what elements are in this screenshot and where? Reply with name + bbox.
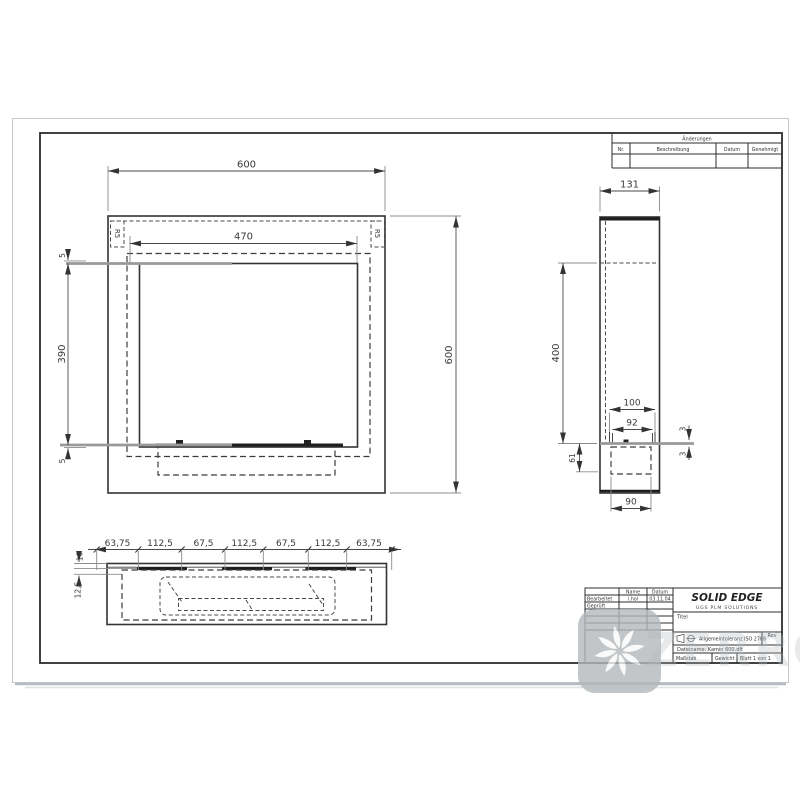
solid-edge-sub: UGS PLM SOLUTIONS: [696, 605, 758, 611]
watermark-logo-icon: [578, 609, 661, 693]
dim-front-corner-right: R5: [373, 229, 381, 238]
dim-side-height: 400: [551, 343, 562, 362]
dim-front-gap-top: 5: [58, 253, 67, 258]
revision-col-nr: Nr.: [618, 147, 625, 153]
revision-col-desc: Beschreibung: [657, 147, 690, 153]
dim-front-inner-height: 390: [57, 344, 68, 363]
tb-col-name: Name: [626, 590, 640, 596]
dim-side-slot-outer: 100: [623, 399, 640, 409]
dim-bottom-seg5: 67,5: [276, 539, 296, 549]
dim-bottom-seg6: 112,5: [315, 539, 341, 549]
dim-bottom-depth: 12,5: [74, 581, 83, 598]
dim-bottom-seg4: 112,5: [231, 539, 257, 549]
dim-side-width: 131: [620, 180, 639, 191]
tb-row1-label: Bearbeitet: [587, 597, 612, 603]
revision-col-date: Datum: [724, 147, 741, 153]
tb-col-date: Datum: [652, 590, 669, 596]
revision-header: Änderungen: [682, 136, 711, 143]
dim-side-base-width: 90: [625, 498, 637, 508]
dim-front-inner-width: 470: [234, 232, 253, 243]
tb-row1-name: i.hol: [628, 597, 638, 603]
tb-row1-date: 03.11.04: [649, 597, 670, 603]
dim-front-corner-left: R5: [113, 229, 121, 238]
drawing-screenshot: Änderungen Nr. Beschreibung Datum Genehm…: [0, 0, 800, 800]
watermark-text: ZERRO: [645, 623, 800, 677]
cad-drawing-sheet: Änderungen Nr. Beschreibung Datum Genehm…: [0, 0, 800, 800]
dim-front-gap-bottom: 5: [58, 458, 67, 463]
tb-row2-label: Geprüft: [587, 604, 605, 610]
dim-side-lip-bottom: 3: [679, 451, 688, 456]
dim-side-slot-inner: 92: [626, 419, 637, 429]
tb-title-label: Titel: [676, 615, 688, 621]
dim-bottom-offset: 10: [76, 552, 85, 562]
dim-bottom-seg3: 67,5: [193, 539, 213, 549]
dim-front-height: 600: [444, 345, 455, 364]
solid-edge-logo: SOLID EDGE: [691, 592, 763, 604]
dim-bottom-seg1: 63,75: [105, 539, 131, 549]
dim-bottom-seg7: 63,75: [356, 539, 382, 549]
dim-bottom-seg2: 112,5: [147, 539, 173, 549]
dim-side-lip-top: 3: [679, 426, 688, 431]
revision-col-appr: Genehmigt: [752, 147, 779, 153]
dim-front-width: 600: [237, 160, 256, 171]
dim-side-inset: 61: [568, 453, 577, 463]
